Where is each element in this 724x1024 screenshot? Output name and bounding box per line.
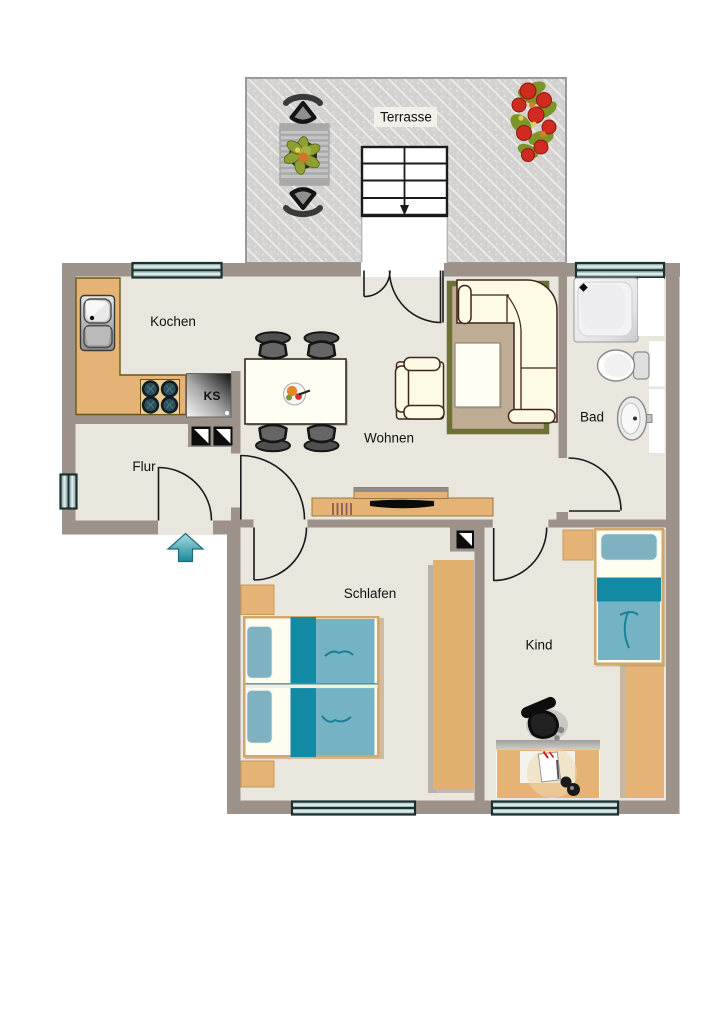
svg-text:Flur: Flur <box>132 459 156 474</box>
svg-text:Kind: Kind <box>525 638 552 653</box>
svg-text:Wohnen: Wohnen <box>364 431 414 446</box>
svg-text:Terrasse: Terrasse <box>380 110 432 125</box>
svg-text:KS: KS <box>204 389 221 403</box>
svg-text:Bad: Bad <box>580 410 604 425</box>
svg-text:Kochen: Kochen <box>150 314 196 329</box>
svg-text:Schlafen: Schlafen <box>344 586 397 601</box>
